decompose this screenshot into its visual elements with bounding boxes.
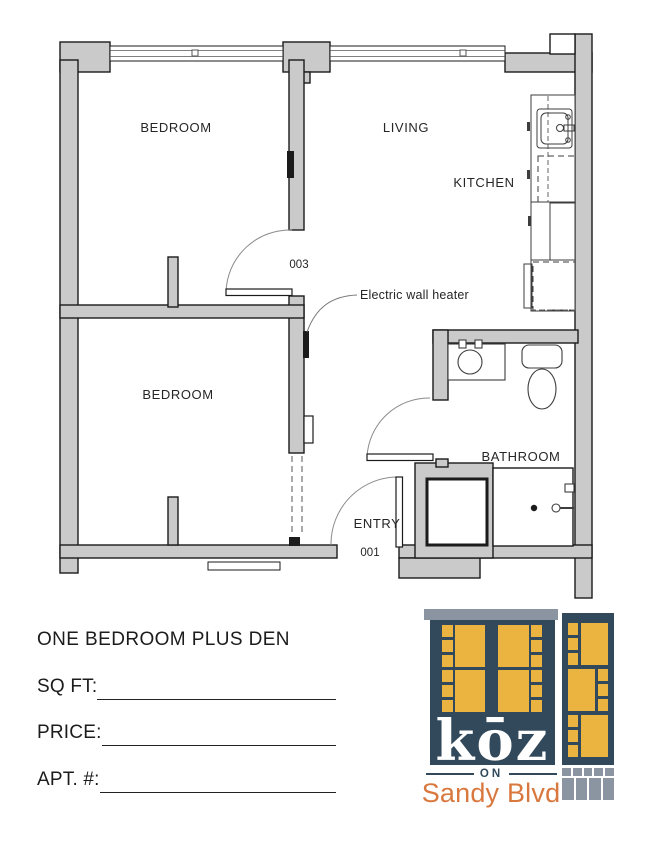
- wall-right-exterior: [575, 34, 592, 598]
- window-top-right: [330, 46, 505, 61]
- window-bedroom-den: [208, 562, 280, 570]
- logo-window-group: [568, 715, 608, 757]
- shower-control: [565, 484, 574, 492]
- apt-number-blank-line: [100, 772, 336, 793]
- door-001-swing-arc: [331, 477, 400, 545]
- wall-bathroom-top: [433, 330, 578, 343]
- logo-window-group: [442, 670, 485, 712]
- bathroom-sink: [458, 350, 482, 374]
- price-blank-line: [102, 725, 336, 746]
- logo-window-pane: [455, 625, 485, 667]
- shower-valve: [552, 504, 560, 512]
- kitchen-cabinet-handles: [527, 122, 531, 226]
- bathroom-door-swing-arc: [367, 398, 430, 457]
- bathroom-fixtures: [427, 340, 574, 546]
- logo-storefront-transom: [562, 768, 614, 776]
- logo-roof-band: [424, 609, 558, 620]
- logo-window-group: [442, 625, 485, 667]
- wall-bedroom-divider: [60, 305, 304, 318]
- door-number-001: 001: [360, 547, 379, 559]
- logo-window-panes: [598, 669, 608, 711]
- logo-window-pane: [455, 670, 485, 712]
- toilet-bowl: [528, 369, 556, 409]
- sqft-field: SQ FT:: [37, 676, 336, 698]
- wall-closet-notch: [436, 459, 448, 467]
- logo-brand-text: kōz: [430, 719, 555, 765]
- entry-door-post: [289, 537, 300, 546]
- wall-top-right-notch: [550, 34, 575, 54]
- logo-window-panes: [568, 715, 578, 757]
- bathroom-door-leaf: [367, 454, 433, 461]
- unit-info: ONE BEDROOM PLUS DEN SQ FT: PRICE: APT. …: [37, 629, 336, 791]
- doors: [226, 230, 433, 547]
- window-mullion-mark: [460, 50, 466, 56]
- logo-window-group: [568, 623, 608, 665]
- flyer-page: BEDROOM LIVING KITCHEN BEDROOM BATHROOM …: [0, 0, 652, 844]
- price-field: PRICE:: [37, 722, 336, 744]
- logo-window-row: [442, 670, 542, 712]
- logo-window-panes: [568, 623, 578, 665]
- logo-right-windows: [568, 623, 608, 761]
- sqft-blank-line: [97, 679, 336, 700]
- logo-window-pane: [498, 625, 529, 667]
- room-label-bathroom: BATHROOM: [482, 449, 561, 464]
- logo-storefront: [562, 768, 614, 800]
- logo-window-panes: [442, 670, 453, 712]
- heater-annotation: Electric wall heater: [360, 288, 469, 302]
- apt-number-field: APT. #:: [37, 769, 336, 791]
- plan-title: ONE BEDROOM PLUS DEN: [37, 629, 336, 651]
- utility-closet: [427, 479, 487, 545]
- heater-leader-line: [307, 295, 357, 332]
- logo-window-panes: [531, 670, 542, 712]
- room-label-bedroom-top: BEDROOM: [140, 120, 211, 135]
- kitchen-fixtures: [524, 95, 575, 311]
- bathroom-faucet: [459, 340, 466, 348]
- logo-window-pane: [581, 715, 608, 757]
- toilet-tank: [522, 345, 562, 368]
- electric-wall-heater-marker: [303, 331, 309, 358]
- window-mullion-mark: [192, 50, 198, 56]
- logo-window-panes: [442, 625, 453, 667]
- den-opening-dashed-lines: [292, 456, 302, 534]
- wall-stub-lower: [168, 497, 178, 545]
- apt-number-label: APT. #:: [37, 769, 100, 791]
- logo-left-building: kōz: [430, 620, 555, 765]
- door-number-003: 003: [289, 259, 308, 271]
- room-label-bedroom-bottom: BEDROOM: [142, 387, 213, 402]
- logo-location-text: Sandy Blvd: [420, 778, 562, 809]
- bedroom-wall-heater-marker: [287, 151, 294, 178]
- room-label-entry: ENTRY: [354, 516, 401, 531]
- wall-bottom-apron: [399, 558, 480, 578]
- logo-window-pane: [568, 669, 595, 711]
- logo-window-group: [498, 625, 542, 667]
- wall-stub-upper: [168, 257, 178, 307]
- logo-window-group: [568, 669, 608, 711]
- door-003-leaf: [226, 289, 292, 296]
- logo-storefront-columns: [562, 778, 614, 800]
- sqft-label: SQ FT:: [37, 676, 97, 698]
- logo-window-panes: [531, 625, 542, 667]
- wall-bathroom-left-stub: [433, 330, 448, 400]
- wall-center-lower: [289, 296, 304, 453]
- floor-plan: BEDROOM LIVING KITCHEN BEDROOM BATHROOM …: [0, 0, 652, 604]
- room-label-kitchen: KITCHEN: [453, 175, 514, 190]
- logo-window-pane: [581, 623, 608, 665]
- price-label: PRICE:: [37, 722, 102, 744]
- room-label-living: LIVING: [383, 120, 429, 135]
- bathroom-faucet: [475, 340, 482, 348]
- wall-panel: [304, 416, 313, 443]
- door-003-swing-arc: [226, 230, 292, 292]
- logo-window-row: [442, 625, 542, 667]
- logo-window-group: [498, 670, 542, 712]
- logo-right-building: [562, 613, 614, 765]
- logo-window-pane: [498, 670, 529, 712]
- wall-bottom-left: [60, 545, 337, 558]
- logo-left-windows: [442, 625, 542, 715]
- logo-divider-dash: [426, 773, 474, 775]
- logo-divider-dash: [509, 773, 557, 775]
- wall-center-upper: [289, 60, 304, 230]
- shower-drain: [531, 505, 537, 511]
- door-001-leaf: [396, 477, 403, 547]
